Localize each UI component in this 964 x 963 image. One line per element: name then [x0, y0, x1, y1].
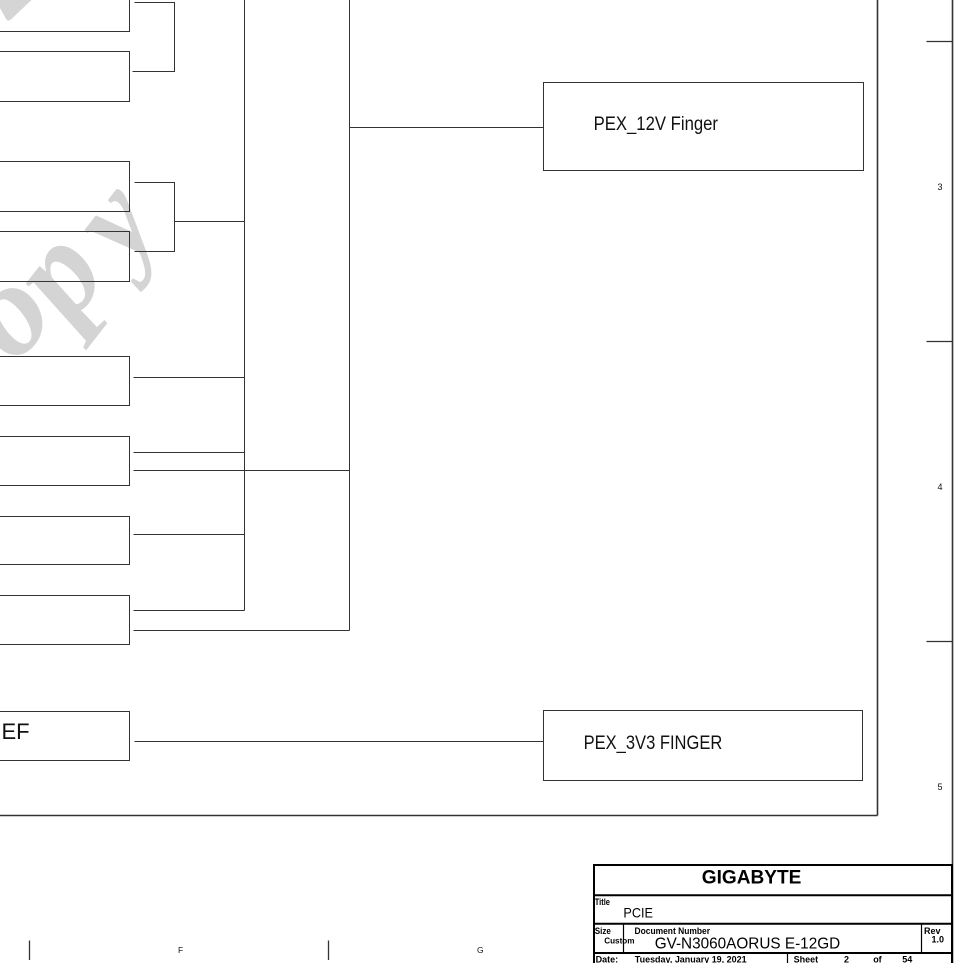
svg-text:3: 3 — [938, 182, 943, 192]
svg-text:GV-N3060AORUS E-12GD: GV-N3060AORUS E-12GD — [655, 935, 841, 952]
svg-text:PEX_3V3 FINGER: PEX_3V3 FINGER — [584, 733, 723, 754]
svg-text:Date:: Date: — [596, 954, 619, 963]
svg-text:Title: Title — [595, 897, 610, 907]
svg-text:F: F — [178, 945, 183, 955]
svg-text:EF: EF — [2, 719, 30, 744]
svg-text:Size: Size — [595, 926, 611, 936]
svg-text:2: 2 — [844, 954, 849, 963]
svg-text:1.0: 1.0 — [932, 935, 945, 945]
svg-text:of: of — [873, 954, 882, 963]
svg-text:Sheet: Sheet — [794, 954, 819, 963]
svg-text:54: 54 — [902, 954, 912, 963]
svg-text:PCIE: PCIE — [623, 906, 653, 921]
svg-text:4: 4 — [938, 482, 943, 492]
svg-text:PEX_12V Finger: PEX_12V Finger — [594, 114, 719, 135]
svg-text:Custom: Custom — [604, 936, 635, 946]
svg-text:Document Number: Document Number — [635, 926, 711, 936]
svg-text:Tuesday, January 19, 2021: Tuesday, January 19, 2021 — [635, 954, 747, 963]
svg-text:GIGABYTE: GIGABYTE — [702, 868, 802, 889]
svg-text:G: G — [477, 945, 484, 955]
svg-text:5: 5 — [938, 782, 943, 792]
